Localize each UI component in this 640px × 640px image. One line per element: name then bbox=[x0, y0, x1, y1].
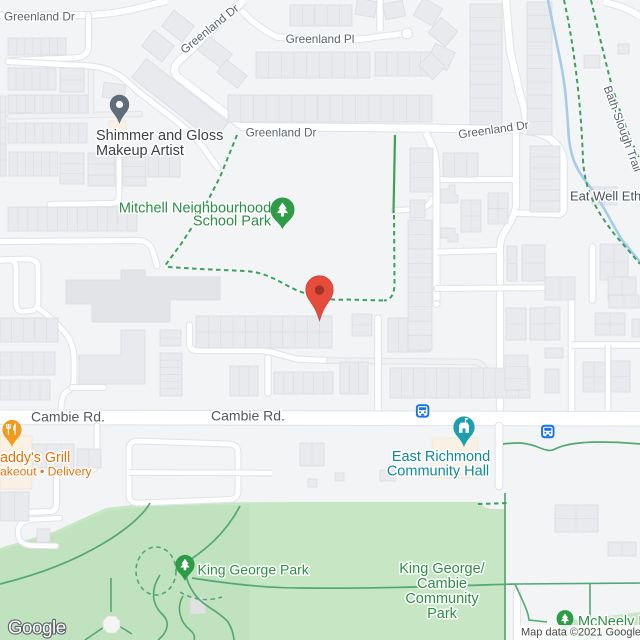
svg-text:Cambie: Cambie bbox=[417, 576, 467, 592]
svg-text:Google: Google bbox=[8, 617, 66, 638]
svg-text:Shimmer and Gloss: Shimmer and Gloss bbox=[96, 128, 223, 144]
svg-text:King George/: King George/ bbox=[399, 561, 485, 577]
svg-text:Eat Well Eth: Eat Well Eth bbox=[570, 189, 640, 204]
svg-text:Greenland Dr: Greenland Dr bbox=[246, 126, 317, 140]
svg-text:Cambie Rd.: Cambie Rd. bbox=[211, 408, 285, 424]
svg-text:Makeup Artist: Makeup Artist bbox=[96, 143, 184, 159]
svg-text:akeout • Delivery: akeout • Delivery bbox=[0, 465, 93, 479]
svg-text:Greenland Pl: Greenland Pl bbox=[286, 32, 355, 46]
svg-text:Park: Park bbox=[427, 606, 458, 622]
svg-text:Map data ©2021 Google: Map data ©2021 Google bbox=[521, 627, 640, 639]
svg-text:Community Hall: Community Hall bbox=[387, 464, 489, 480]
svg-text:Greenland Dr: Greenland Dr bbox=[4, 10, 75, 24]
svg-text:King George Park: King George Park bbox=[198, 562, 310, 578]
svg-text:Cambie Rd.: Cambie Rd. bbox=[31, 409, 105, 425]
svg-text:Community: Community bbox=[405, 591, 479, 607]
svg-text:School Park: School Park bbox=[193, 214, 272, 230]
